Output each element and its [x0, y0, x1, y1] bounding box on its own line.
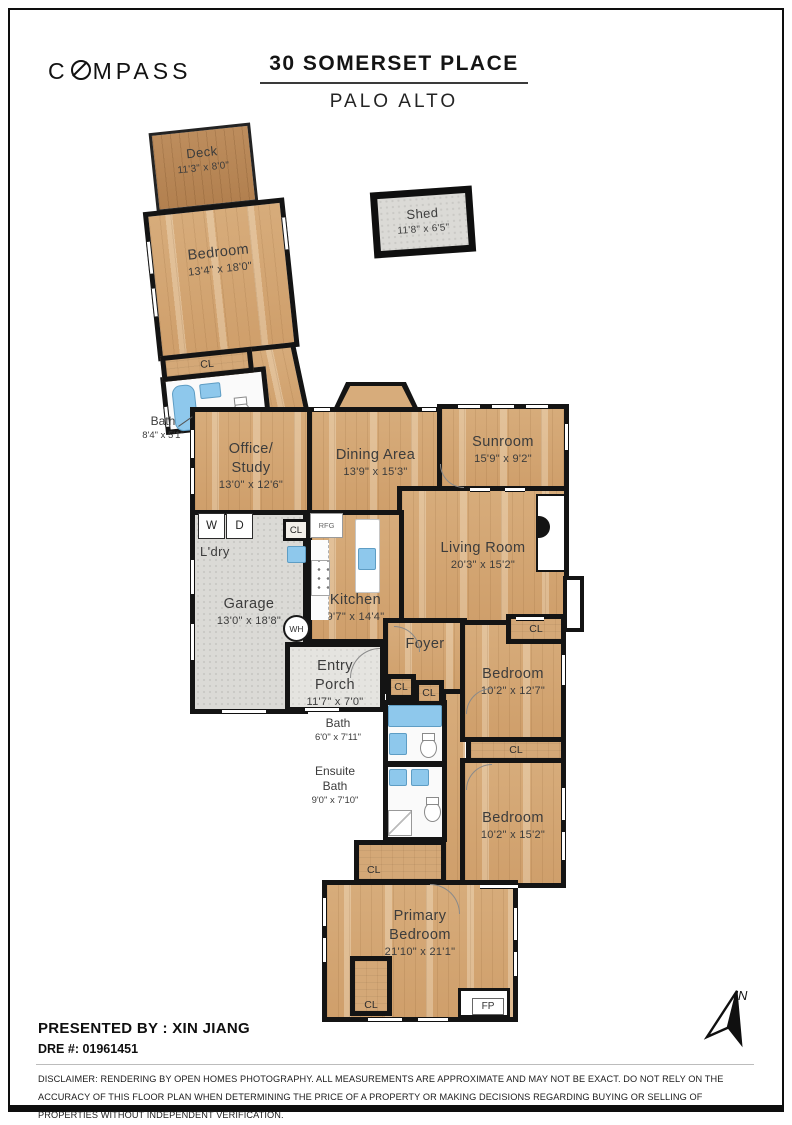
shower-stall-icon — [388, 810, 412, 836]
closet-label: CL — [367, 864, 380, 876]
primary-label-2: Bedroom — [327, 926, 513, 945]
window — [322, 898, 327, 926]
compass-logo-c: C — [48, 58, 69, 84]
stove-icon — [311, 560, 330, 596]
bedroom-top-label: Bedroom — [152, 237, 285, 270]
primary-label-1: Primary — [327, 907, 513, 926]
door-opening — [305, 707, 339, 712]
window — [322, 938, 327, 962]
room-deck: Deck 11'3" x 8'0" — [149, 123, 259, 213]
toilet-icon — [424, 802, 441, 822]
island-sink-icon — [358, 548, 376, 570]
washer-box: W — [198, 513, 225, 539]
window — [190, 624, 195, 660]
shed-dims: 11'8" x 6'5" — [379, 221, 468, 238]
window — [492, 404, 514, 409]
window — [561, 788, 566, 820]
washer-label: W — [206, 520, 217, 532]
ensuite-label-1: Ensuite — [296, 764, 374, 779]
water-heater-icon: WH — [283, 615, 310, 642]
sink-icon — [411, 769, 429, 786]
dining-dims: 13'9" x 15'3" — [312, 466, 439, 478]
bath-top-dims: 8'4" x 5'1" — [130, 430, 196, 441]
living-window-bumpout — [563, 576, 584, 632]
title-block: 30 SOMERSET PLACE PALO ALTO — [244, 52, 544, 113]
upper-wing: Deck 11'3" x 8'0" Bedroom 13'4" x 18'0" … — [135, 119, 316, 435]
window — [564, 424, 569, 450]
window — [526, 404, 548, 409]
toilet-icon — [420, 738, 437, 758]
window — [368, 1017, 402, 1022]
refrigerator-label: RFG — [319, 521, 335, 530]
closet-between-bedrooms: CL — [466, 737, 566, 763]
hall-bath-dims: 6'0" x 7'11" — [300, 732, 376, 743]
presented-by: PRESENTED BY : XIN JIANG — [38, 1020, 250, 1037]
closet-label: CL — [200, 358, 215, 371]
sink-icon — [389, 733, 407, 755]
refrigerator-box: RFG — [310, 513, 343, 538]
room-bedroom-top: Bedroom 13'4" x 18'0" — [143, 197, 300, 361]
compass-o-icon — [71, 60, 91, 80]
window — [418, 1017, 448, 1022]
hall-bath-label: Bath — [300, 716, 376, 731]
dryer-label: D — [235, 520, 243, 532]
compass-logo: CMPASS — [48, 58, 191, 85]
window — [561, 655, 566, 685]
bedroom-low-dims: 10'2" x 15'2" — [465, 829, 561, 841]
page-subtitle: PALO ALTO — [244, 91, 544, 113]
footer-divider — [36, 1064, 754, 1065]
closet-hall: CL — [354, 840, 446, 884]
closet-label: CL — [364, 999, 377, 1011]
dryer-box: D — [226, 513, 253, 539]
laundry-label: L'dry — [200, 544, 230, 559]
sunroom-label: Sunroom — [442, 433, 564, 452]
dre-number: DRE #: 01961451 — [38, 1042, 138, 1056]
shed-label: Shed — [378, 203, 467, 226]
window — [222, 709, 266, 714]
hall-bath-label-block: Bath 6'0" x 7'11" — [300, 716, 376, 743]
room-office-study: Office/ Study 13'0" x 12'6" — [190, 407, 312, 515]
sink-icon — [199, 382, 221, 399]
bedroom-top-dims: 13'4" x 18'0" — [154, 256, 287, 282]
closet-foyer-1: CL — [386, 674, 416, 700]
window — [470, 487, 490, 492]
window — [480, 884, 518, 889]
porch-dims: 11'7" x 7'0" — [290, 696, 380, 708]
bath-top-label-block: Bath 8'4" x 5'1" — [130, 414, 196, 441]
north-arrow-icon — [702, 986, 764, 1056]
window — [513, 952, 518, 976]
disclaimer-text: DISCLAIMER: RENDERING BY OPEN HOMES PHOT… — [38, 1071, 754, 1125]
fireplace-label: FP — [482, 1001, 495, 1012]
ensuite-dims: 9'0" x 7'10" — [296, 795, 374, 806]
window — [458, 404, 480, 409]
water-heater-label: WH — [289, 624, 303, 634]
compass-logo-rest: MPASS — [93, 58, 192, 84]
closet-label: CL — [529, 623, 542, 635]
window — [516, 616, 544, 621]
window — [422, 407, 436, 412]
closet-label: CL — [509, 744, 522, 756]
closet-primary: CL — [350, 956, 392, 1016]
sink-icon — [389, 769, 407, 786]
north-label: N — [738, 988, 747, 1003]
office-label-2: Study — [195, 459, 307, 478]
closet-label: CL — [290, 525, 302, 536]
window — [513, 908, 518, 940]
bedroom-low-label: Bedroom — [465, 809, 561, 828]
office-dims: 13'0" x 12'6" — [195, 479, 307, 491]
dining-label: Dining Area — [312, 446, 439, 465]
window — [190, 560, 195, 594]
deck-dims: 11'3" x 8'0" — [155, 158, 252, 179]
ensuite-label-2: Bath — [296, 779, 374, 794]
closet-foyer-2: CL — [414, 680, 444, 706]
office-label-1: Office/ — [195, 440, 307, 459]
shower-icon — [388, 705, 442, 727]
title-underline — [260, 82, 528, 84]
room-shed: Shed 11'8" x 6'5" — [370, 186, 476, 259]
porch-label-2: Porch — [290, 676, 380, 695]
closet-kitchen: CL — [283, 519, 309, 541]
closet-label: CL — [394, 681, 407, 693]
deck-label: Deck — [153, 140, 250, 167]
ensuite-label-block: Ensuite Bath 9'0" x 7'10" — [296, 764, 374, 806]
bedroom-mid-label: Bedroom — [465, 665, 561, 684]
window — [190, 468, 195, 494]
garage-label: Garage — [195, 595, 303, 614]
laundry-sink-icon — [287, 546, 306, 563]
window — [505, 487, 525, 492]
closet-label: CL — [422, 687, 435, 699]
window — [314, 407, 330, 412]
window — [561, 832, 566, 860]
page-title: 30 SOMERSET PLACE — [244, 52, 544, 76]
fireplace-box: FP — [472, 998, 504, 1015]
